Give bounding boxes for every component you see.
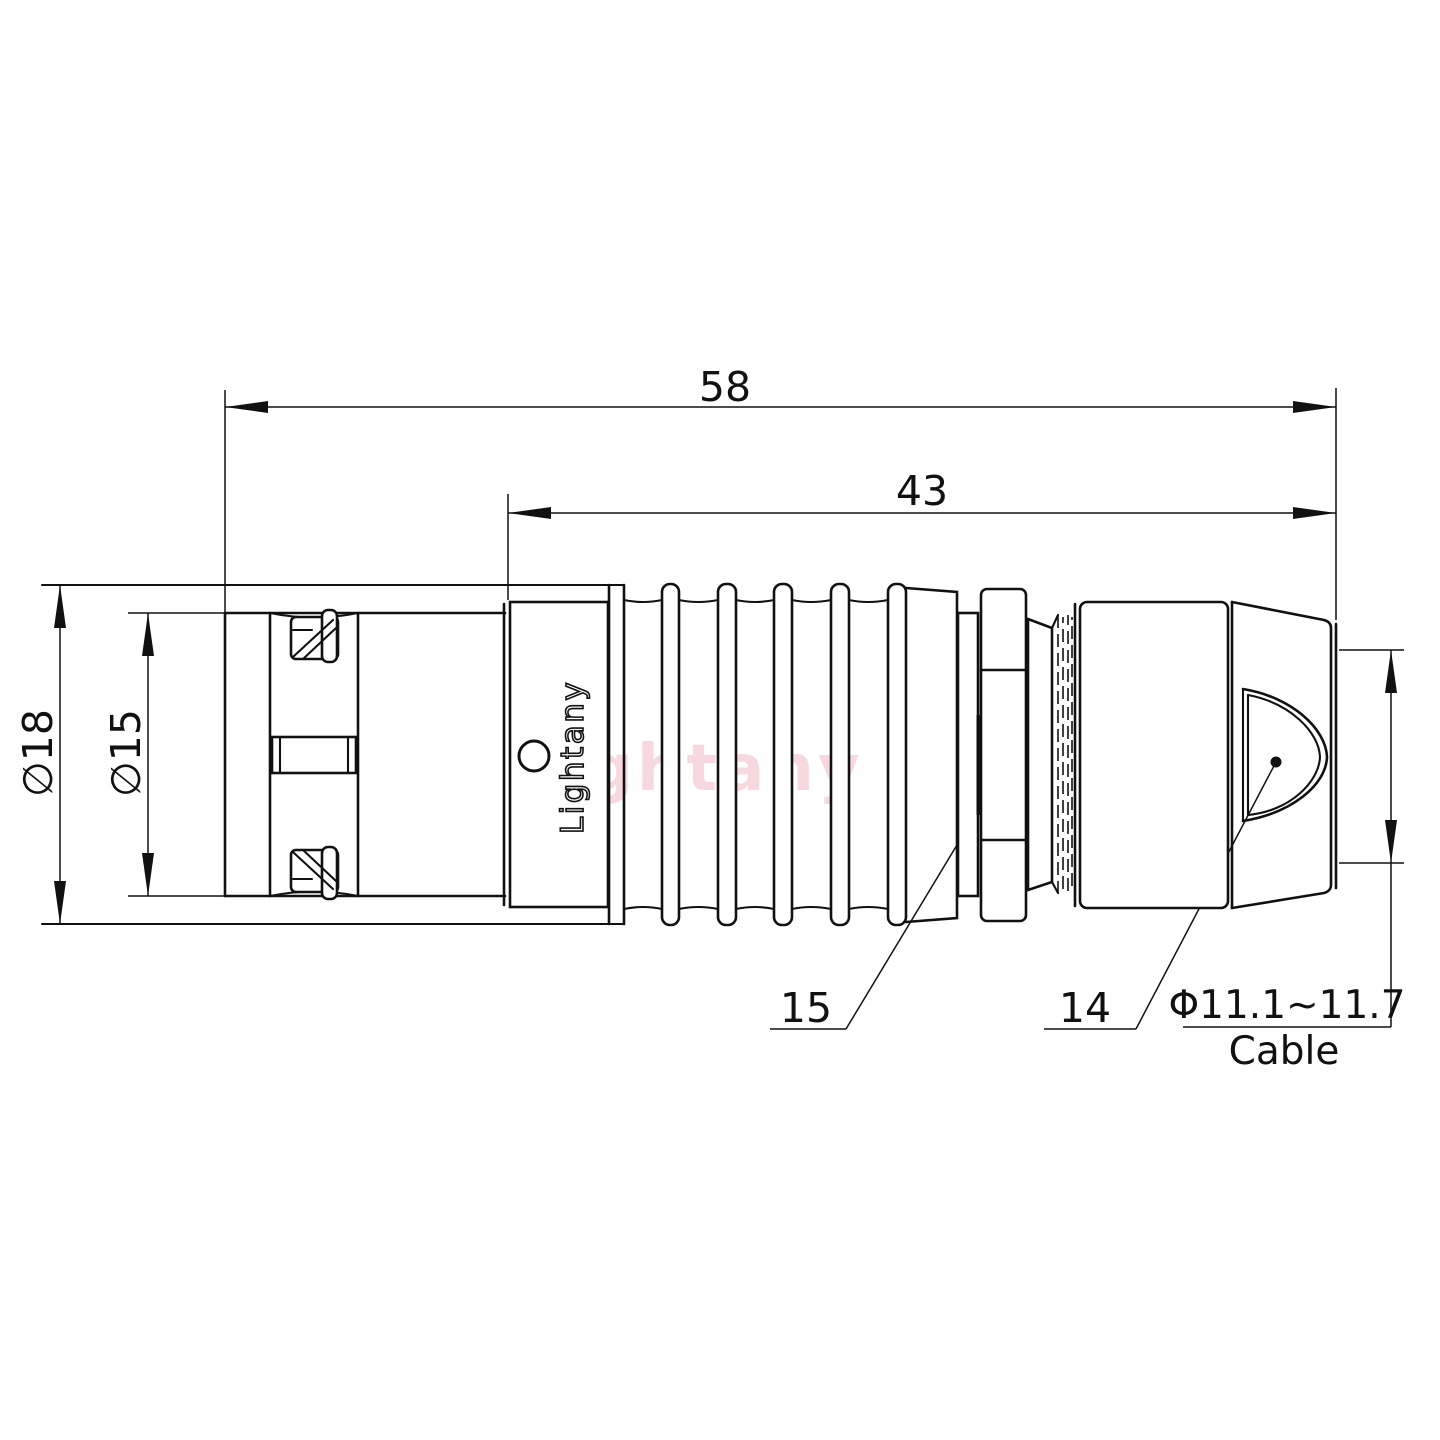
- part-label-15: 15: [780, 984, 832, 1032]
- valley-top-2: [679, 600, 718, 602]
- latch-top: [291, 610, 338, 662]
- ribbed-section: [609, 584, 957, 925]
- rear-body-section: [1075, 602, 1232, 908]
- latch-bottom-tooth: [322, 847, 337, 899]
- rib-3: [774, 584, 792, 925]
- dim-18-arrow-bottom: [54, 881, 66, 924]
- dim-43-arrow-right: [1293, 507, 1336, 519]
- dim-15-arrow-bottom: [142, 853, 154, 896]
- dim-nose-diameter-text: ∅15: [102, 709, 150, 797]
- valley-bottom-2: [679, 907, 718, 909]
- collar: [958, 613, 978, 896]
- dim-58-arrow-left: [225, 401, 268, 413]
- cone-outline: [1232, 602, 1331, 908]
- key-slot: [272, 737, 356, 773]
- valley-top-4: [792, 600, 831, 602]
- cable-caption-text: Cable: [1229, 1029, 1340, 1074]
- ring-hole: [519, 741, 549, 771]
- nut-section: [958, 589, 1026, 921]
- logo-ring-section: Lightany: [504, 602, 608, 907]
- pocket-curve-inner: [1248, 695, 1320, 815]
- nose-section: [225, 610, 505, 899]
- cone-section: [1232, 602, 1336, 908]
- rib-tail-cap: [906, 588, 957, 922]
- body-logo-text: Lightany: [555, 680, 591, 834]
- rib-4: [831, 584, 849, 925]
- valley-top-1: [624, 600, 662, 602]
- neck-chamfer-bottom: [1052, 882, 1058, 893]
- dim-43-arrow-left: [508, 507, 551, 519]
- valley-bottom-5: [849, 907, 888, 909]
- part-label-14: 14: [1059, 984, 1111, 1032]
- latch-bottom: [291, 847, 338, 899]
- rib-5: [888, 584, 906, 925]
- rear-body: [1080, 602, 1228, 908]
- collet-nut: [981, 589, 1026, 921]
- dim-cable-diameter-text: Φ11.1~11.7: [1168, 983, 1405, 1028]
- valley-bottom-3: [736, 907, 774, 909]
- neck-chamfer-top: [1052, 615, 1058, 628]
- valley-bottom-4: [792, 907, 831, 909]
- latch-top-tooth: [322, 610, 337, 662]
- connector-technical-drawing: Lightany: [0, 0, 1440, 1440]
- dim-cable-arrow-bottom: [1385, 820, 1397, 863]
- valley-top-3: [736, 600, 774, 602]
- dim-15-arrow-top: [142, 613, 154, 656]
- dim-58-arrow-right: [1293, 401, 1336, 413]
- rib-1: [662, 584, 679, 925]
- neck: [1028, 619, 1052, 890]
- key-slot-body: [272, 737, 356, 773]
- washer-section: [1028, 615, 1072, 893]
- rib-2: [718, 584, 736, 925]
- dim-43-text: 43: [896, 467, 948, 515]
- valley-bottom-1: [624, 907, 662, 909]
- drawing-sheet: Lightany: [0, 0, 1440, 1440]
- dim-18-arrow-top: [54, 585, 66, 628]
- dim-cable-arrow-top: [1385, 650, 1397, 693]
- dim-58-text: 58: [699, 363, 751, 411]
- leader-dot-14: [1271, 757, 1282, 768]
- dim-shell-diameter-text: ∅18: [14, 709, 62, 797]
- valley-top-5: [849, 600, 888, 602]
